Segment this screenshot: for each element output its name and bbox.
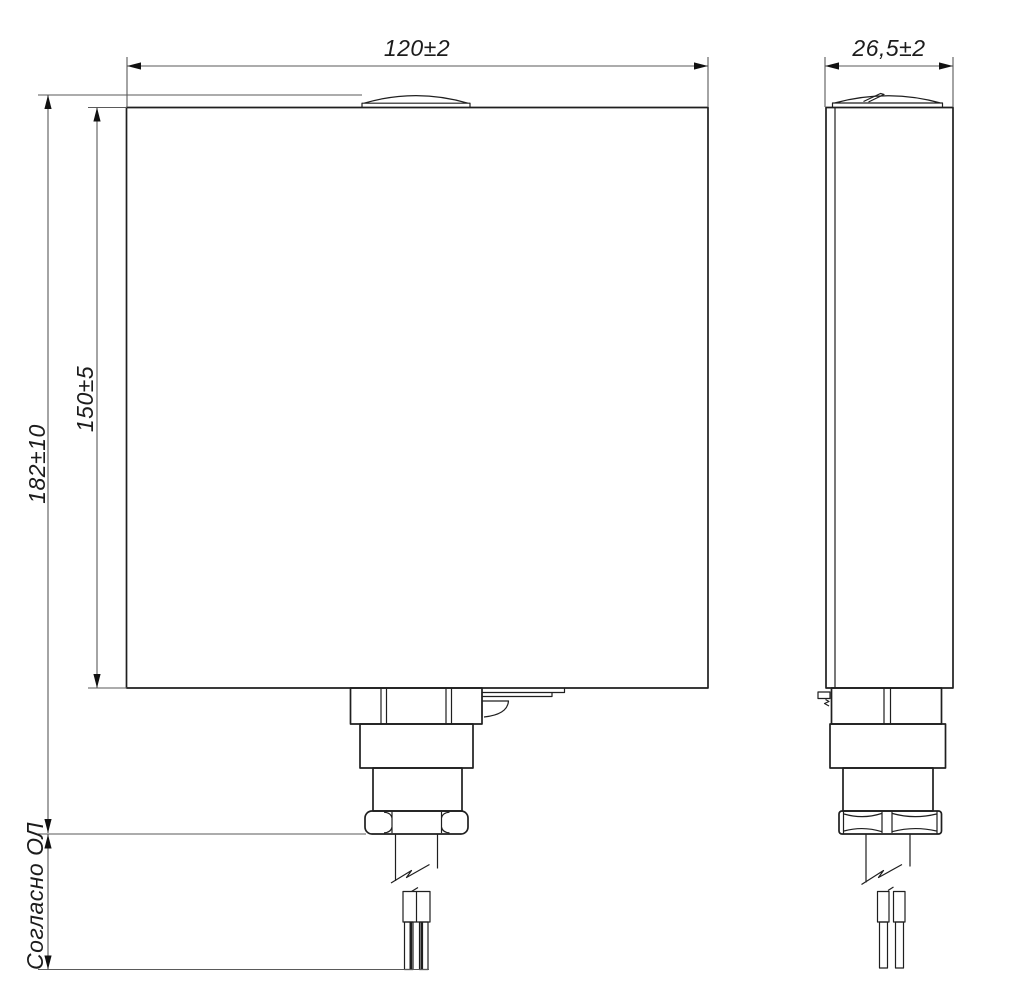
side-dome-slot [864,94,885,103]
arrow-body-top [93,108,100,122]
drawing-sheet: 120±2 26,5±2 182±10 150±5 Согласно ОЛ [0,0,1024,1008]
front-adapter-block [360,724,473,768]
label-side-width: 26,5±2 [851,35,925,61]
front-body-outline [127,108,709,689]
arrow-side-width-right [939,62,953,69]
front-hex-nut-facets [384,812,450,833]
side-pin-left [880,922,888,968]
front-terminal-block-dividers [381,688,452,724]
side-terminal-block-body [832,688,942,724]
side-pin-right [896,922,904,968]
arrow-side-width-left [825,62,839,69]
side-clip-tab [818,692,830,699]
side-clip-tick [825,700,830,707]
side-gland-block [843,768,933,811]
front-terminal-block-body [351,688,483,724]
side-hex-nut-chamfer-arcs [844,814,937,832]
side-pins [878,887,906,968]
side-hex-nut [839,811,942,834]
label-overall-height: 182±10 [24,424,50,504]
label-front-width: 120±2 [384,35,450,61]
front-hex-nut [365,811,468,834]
arrow-front-width-left [127,62,141,69]
front-top-dome [362,96,470,108]
side-pin-tick [888,887,894,891]
side-adapter-block [830,724,946,768]
front-cable-stub [391,834,438,883]
side-view [818,94,953,969]
label-body-height: 150±5 [72,366,98,432]
dimension-annotations: 120±2 26,5±2 182±10 150±5 Согласно ОЛ [22,35,953,970]
side-terminal-block [832,688,942,724]
front-wire-sleeve-divider [412,888,419,923]
front-mounting-bracket [482,688,565,718]
side-body-outline [826,108,953,689]
front-gland-block [373,768,462,811]
side-top-dome [833,96,943,108]
front-view [127,96,709,970]
arrow-overall-top [44,95,51,109]
side-hex-nut-edges [844,812,938,834]
ext-lines-side-width [825,57,953,107]
side-terminal-block-dividers [884,688,891,724]
arrow-front-width-right [694,62,708,69]
arrow-body-bottom [93,674,100,688]
technical-drawing-canvas: 120±2 26,5±2 182±10 150±5 Согласно ОЛ [0,0,1024,1008]
side-pin-right-sleeve [894,892,906,923]
front-wires [403,888,430,970]
ext-lines-front-width [127,57,708,107]
side-cable-stub [862,834,911,885]
front-cable-break-symbol [391,865,430,884]
side-clip [818,692,830,706]
side-pin-left-sleeve [878,892,890,923]
side-cable-break-symbol [862,865,903,885]
front-cable-stub-edges [396,834,438,881]
label-cable-note: Согласно ОЛ [22,822,48,970]
front-hex-nut-outline [365,811,468,834]
side-cable-stub-edges [866,834,910,883]
side-hex-nut-outline [839,811,942,834]
front-terminal-block [351,688,483,724]
